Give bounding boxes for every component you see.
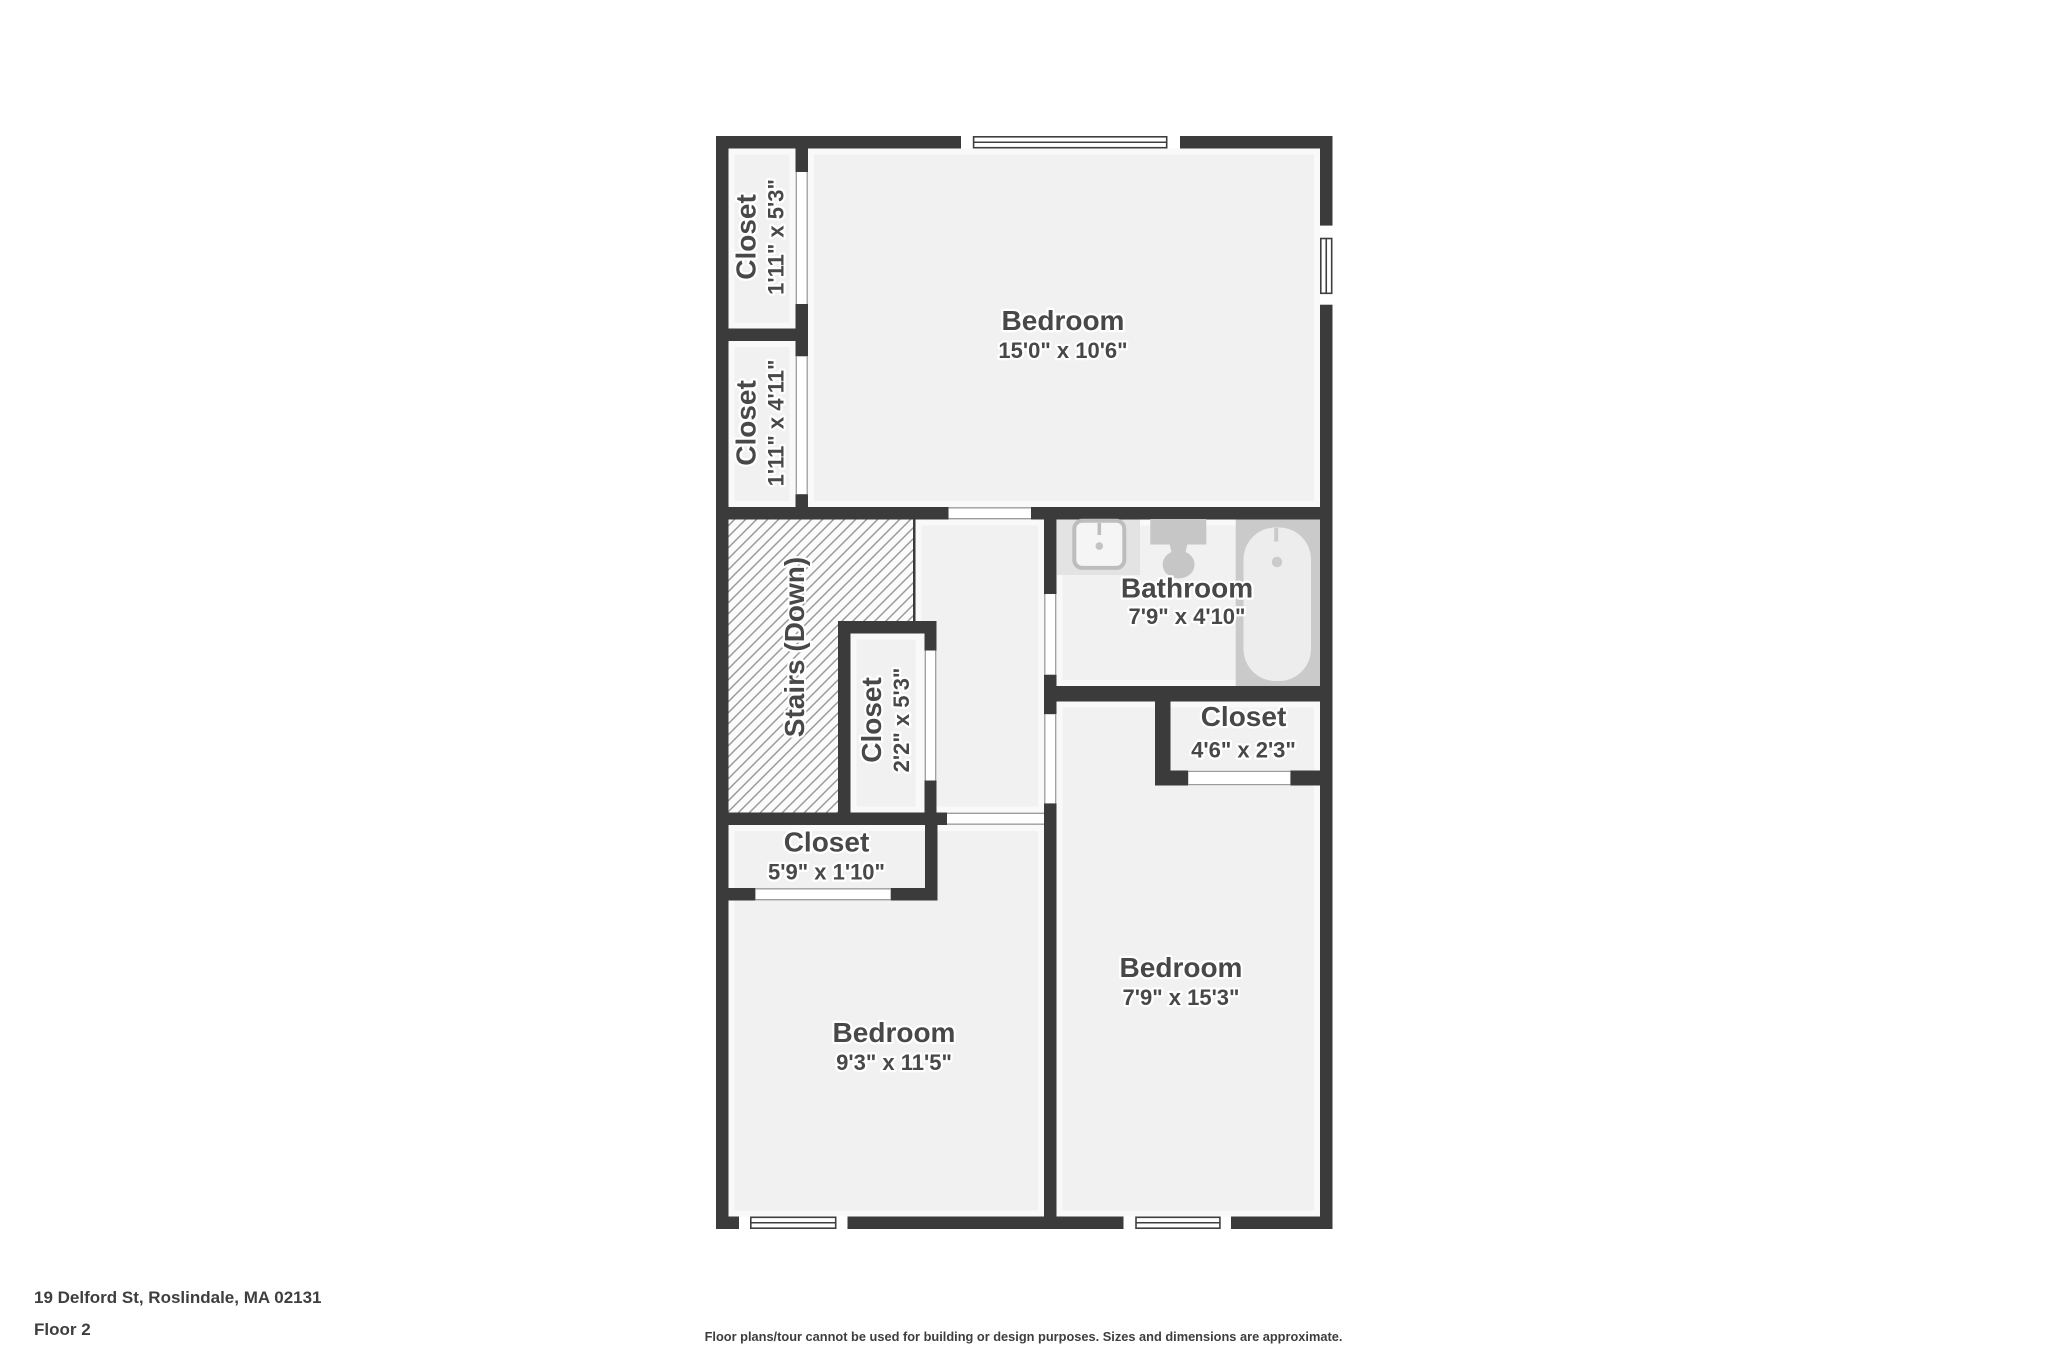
svg-text:2'2" x 5'3": 2'2" x 5'3" (889, 668, 914, 773)
svg-text:7'9" x 4'10": 7'9" x 4'10" (1129, 604, 1246, 629)
svg-text:15'0" x 10'6": 15'0" x 10'6" (998, 338, 1127, 363)
svg-text:Bedroom: Bedroom (833, 1017, 956, 1048)
svg-text:19 Delford St, Roslindale, MA: 19 Delford St, Roslindale, MA 02131 (34, 1288, 322, 1307)
svg-text:Bathroom: Bathroom (1121, 573, 1253, 604)
svg-text:5'9" x 1'10": 5'9" x 1'10" (768, 860, 885, 885)
svg-text:9'3" x 11'5": 9'3" x 11'5" (836, 1050, 952, 1075)
svg-text:4'6" x 2'3": 4'6" x 2'3" (1191, 738, 1296, 763)
svg-text:7'9" x 15'3": 7'9" x 15'3" (1123, 985, 1240, 1010)
svg-text:Stairs (Down): Stairs (Down) (779, 557, 810, 737)
svg-text:Bedroom: Bedroom (1120, 952, 1243, 983)
svg-text:1'11" x 5'3": 1'11" x 5'3" (764, 179, 789, 295)
svg-text:Closet: Closet (731, 380, 762, 466)
svg-text:Bedroom: Bedroom (1002, 305, 1125, 336)
svg-text:Closet: Closet (856, 677, 887, 763)
svg-text:1'11" x 4'11": 1'11" x 4'11" (764, 360, 789, 487)
svg-text:Closet: Closet (1201, 701, 1287, 732)
svg-text:Closet: Closet (784, 827, 870, 858)
svg-text:Closet: Closet (731, 194, 762, 280)
svg-text:Floor plans/tour cannot be use: Floor plans/tour cannot be used for buil… (705, 1329, 1343, 1344)
svg-text:Floor 2: Floor 2 (34, 1320, 91, 1339)
